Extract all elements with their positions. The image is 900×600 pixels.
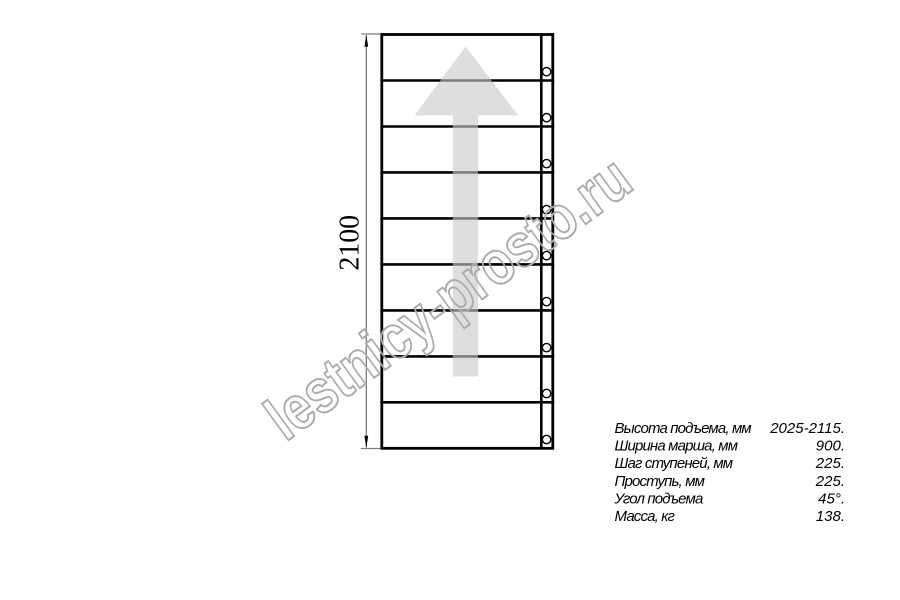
svg-text:900.: 900. (816, 438, 845, 455)
svg-text:Шаг ступеней, мм: Шаг ступеней, мм (615, 455, 733, 472)
svg-text:Проступь, мм: Проступь, мм (615, 473, 705, 490)
svg-text:Ширина марша, мм: Ширина марша, мм (615, 438, 738, 455)
svg-text:2100: 2100 (334, 215, 365, 271)
svg-text:Масса, кг: Масса, кг (615, 508, 676, 525)
svg-text:225.: 225. (815, 473, 845, 490)
svg-text:lestnicy-prosto.ru: lestnicy-prosto.ru (253, 143, 644, 453)
svg-text:Высота подъема, мм: Высота подъема, мм (615, 420, 752, 437)
svg-text:138.: 138. (816, 508, 845, 525)
svg-text:2025-2115.: 2025-2115. (769, 420, 845, 437)
svg-text:Угол подъема: Угол подъема (614, 490, 703, 507)
svg-text:45°.: 45°. (818, 490, 845, 507)
svg-text:225.: 225. (815, 455, 845, 472)
